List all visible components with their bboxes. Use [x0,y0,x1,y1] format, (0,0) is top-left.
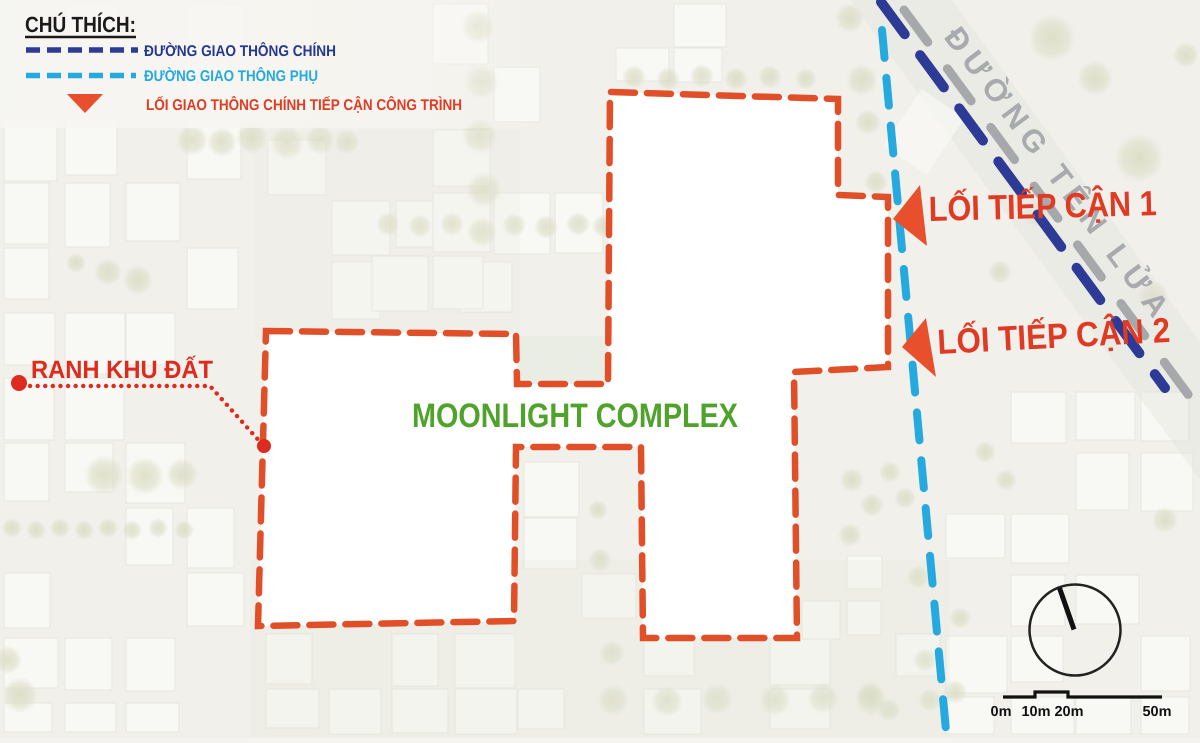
svg-text:ĐƯỜNG GIAO THÔNG PHỤ: ĐƯỜNG GIAO THÔNG PHỤ [144,67,318,85]
svg-text:LỐI GIAO THÔNG CHÍNH TIẾP CẬN: LỐI GIAO THÔNG CHÍNH TIẾP CẬN CÔNG TRÌNH [146,96,462,114]
svg-text:50m: 50m [1142,704,1171,720]
svg-text:0m: 0m [991,704,1012,720]
svg-text:20m: 20m [1054,704,1083,720]
svg-text:MOONLIGHT COMPLEX: MOONLIGHT COMPLEX [412,397,738,435]
svg-text:10m: 10m [1021,704,1050,720]
svg-text:LỐI TIẾP CẬN 1: LỐI TIẾP CẬN 1 [928,183,1157,229]
svg-text:RANH KHU ĐẤT: RANH KHU ĐẤT [31,355,213,384]
svg-text:CHÚ THÍCH:: CHÚ THÍCH: [25,12,136,37]
svg-text:ĐƯỜNG GIAO THÔNG CHÍNH: ĐƯỜNG GIAO THÔNG CHÍNH [144,42,336,60]
